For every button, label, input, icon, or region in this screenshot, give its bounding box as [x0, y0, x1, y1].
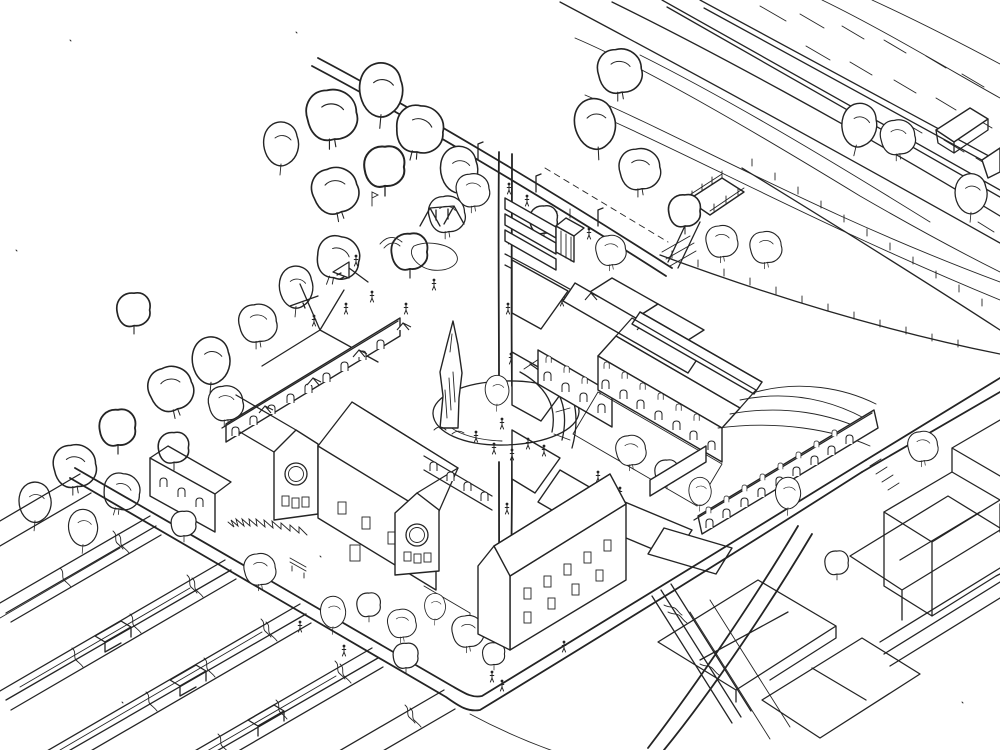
crosswalk: [870, 459, 899, 490]
architectural-sketch: [0, 0, 1000, 750]
fountain-spire: [434, 321, 464, 434]
railway-sheds: [936, 108, 1000, 178]
west-block: [150, 284, 458, 643]
sketch-canvas: [0, 0, 1000, 750]
flag-pole: [372, 192, 378, 206]
bench: [290, 558, 306, 578]
large-roof-block: [658, 580, 836, 702]
hedge: [228, 519, 307, 535]
kiosk-tower: [556, 209, 584, 262]
